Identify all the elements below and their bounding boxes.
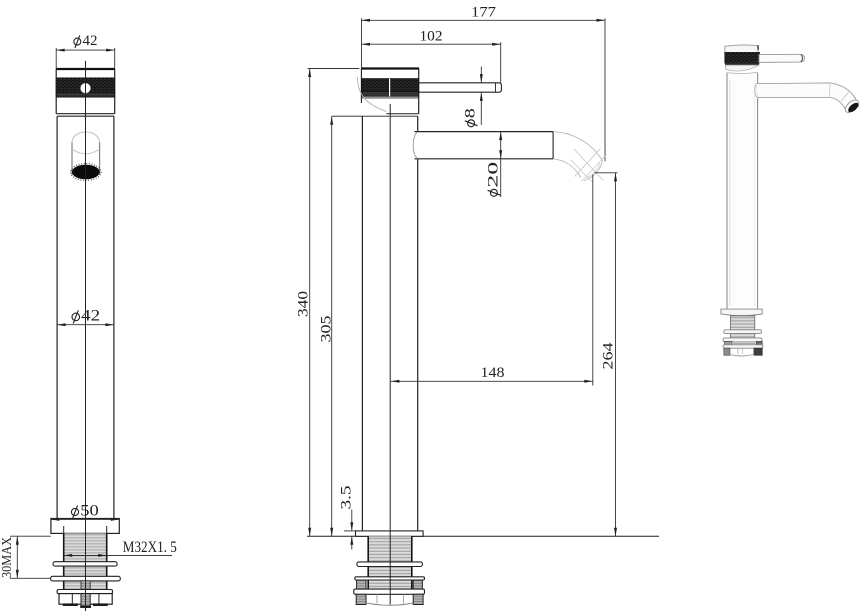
svg-text:42: 42 [83, 33, 98, 49]
svg-text:264: 264 [601, 342, 617, 370]
svg-text:50: 50 [80, 503, 99, 520]
svg-text:305: 305 [319, 316, 335, 343]
svg-text:340: 340 [296, 291, 312, 317]
svg-text:M32X1. 5: M32X1. 5 [123, 539, 177, 556]
svg-text:3.5: 3.5 [338, 486, 354, 510]
svg-text:148: 148 [481, 365, 505, 381]
svg-text:20: 20 [485, 162, 501, 188]
svg-text:30MAX: 30MAX [0, 537, 15, 578]
svg-text:42: 42 [81, 308, 100, 325]
svg-text:177: 177 [471, 5, 497, 21]
svg-text:102: 102 [420, 29, 443, 45]
svg-text:8: 8 [463, 108, 479, 118]
